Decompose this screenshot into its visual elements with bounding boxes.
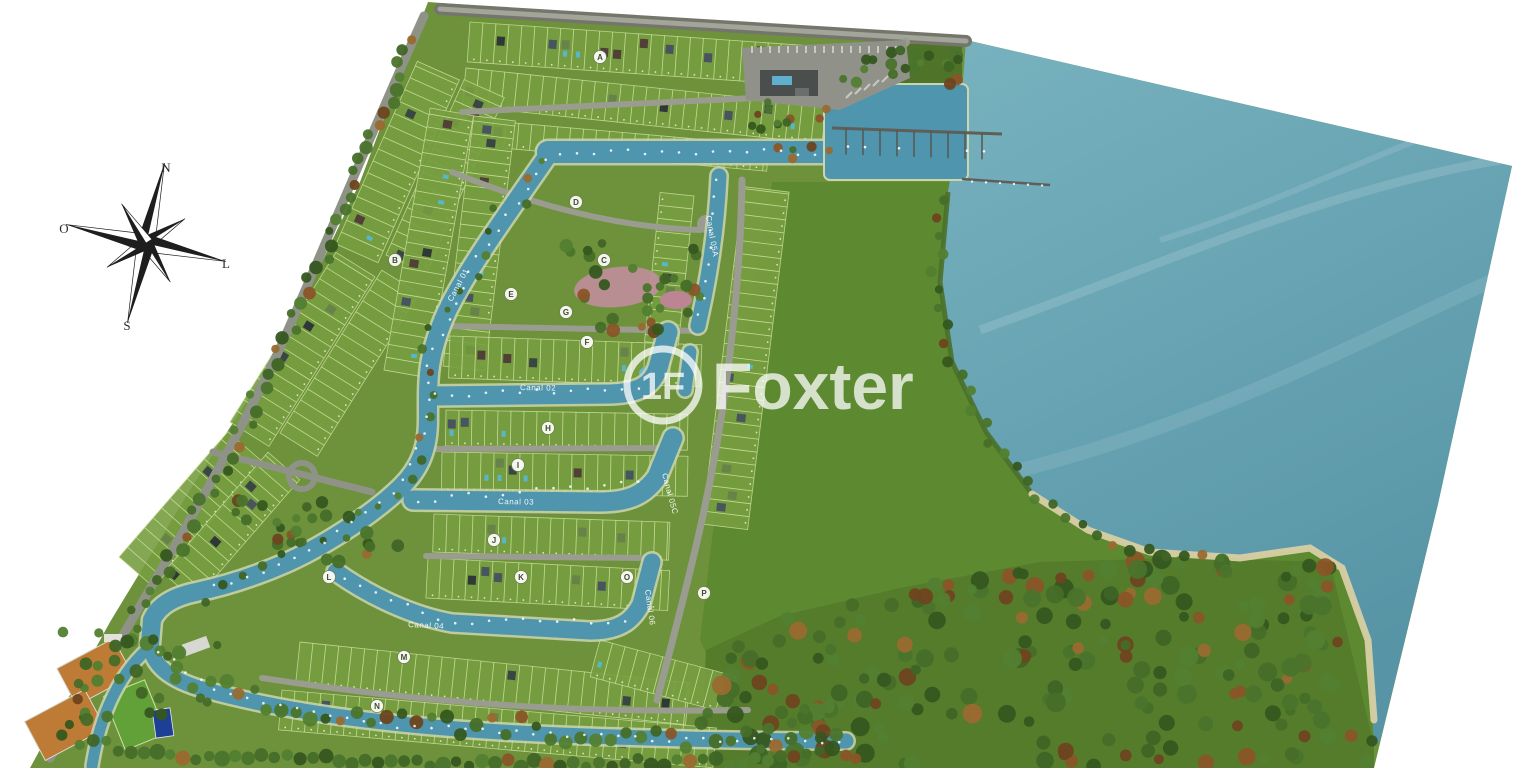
foxter-wordmark: Foxter (712, 349, 914, 423)
compass-label-west: O (59, 221, 68, 236)
canal-label: Canal 04 (408, 620, 444, 631)
block-marker: N (371, 700, 384, 713)
block-marker: D (570, 196, 583, 209)
svg-text:N: N (374, 702, 380, 711)
canal-label: Canal 02 (520, 383, 556, 393)
foxter-logo-monogram: 1F (641, 366, 685, 408)
block-marker: J (488, 534, 501, 547)
canal-label: Canal 03 (498, 497, 534, 507)
block-marker: H (542, 422, 555, 435)
svg-text:J: J (492, 536, 496, 545)
block-marker: K (515, 571, 528, 584)
block-marker: P (698, 587, 711, 600)
svg-text:H: H (545, 424, 551, 433)
block-marker: M (398, 651, 411, 664)
svg-text:P: P (701, 589, 707, 598)
compass-label-south: S (123, 318, 130, 333)
svg-text:L: L (327, 573, 332, 582)
svg-text:C: C (601, 256, 607, 265)
screenshot-canvas: Canal 01Canal 02Canal 03Canal 04Canal 05… (0, 0, 1515, 768)
svg-text:G: G (563, 308, 569, 317)
svg-text:A: A (597, 53, 603, 62)
compass-label-east: L (222, 256, 230, 271)
block-marker: I (512, 459, 525, 472)
block-marker: A (594, 51, 607, 64)
lot-row (433, 514, 670, 560)
block-marker: B (389, 254, 402, 267)
block-marker: L (323, 571, 336, 584)
compass-rose: N S O L (59, 160, 230, 333)
block-marker: G (560, 306, 573, 319)
svg-text:E: E (508, 290, 514, 299)
svg-text:F: F (585, 338, 590, 347)
street-4 (436, 448, 668, 449)
svg-text:I: I (517, 461, 519, 470)
compass-label-north: N (161, 160, 171, 175)
svg-text:M: M (401, 653, 408, 662)
svg-text:D: D (573, 198, 579, 207)
street-5 (426, 556, 655, 558)
site-plan: Canal 01Canal 02Canal 03Canal 04Canal 05… (0, 0, 1515, 768)
svg-text:O: O (624, 573, 630, 582)
block-marker: O (621, 571, 634, 584)
clubhouse-annex (795, 88, 809, 96)
clubhouse-pool (772, 76, 792, 85)
compass-star (66, 163, 226, 323)
svg-text:K: K (518, 573, 524, 582)
block-marker: E (505, 288, 518, 301)
block-marker: C (598, 254, 611, 267)
block-marker: F (581, 336, 594, 349)
svg-text:B: B (392, 256, 398, 265)
